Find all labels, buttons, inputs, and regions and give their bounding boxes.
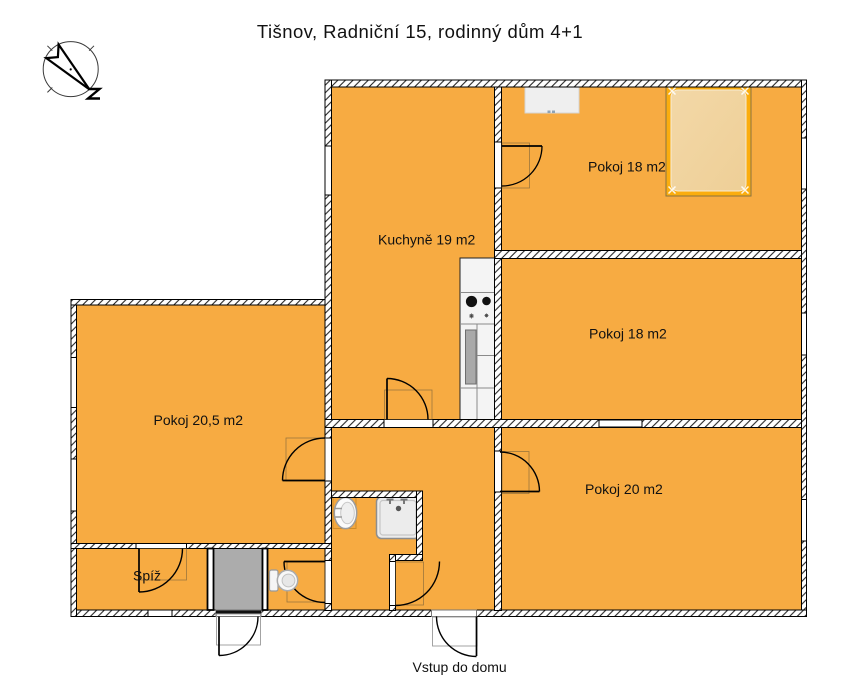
svg-text:Pokoj 20 m2: Pokoj 20 m2: [585, 481, 663, 497]
svg-text:Vstup do domu: Vstup do domu: [413, 659, 507, 675]
svg-text:Pokoj 18 m2: Pokoj 18 m2: [588, 159, 666, 175]
svg-text:Tišnov, Radniční 15, rodinný d: Tišnov, Radniční 15, rodinný dům 4+1: [257, 21, 583, 42]
svg-text:Pokoj 20,5 m2: Pokoj 20,5 m2: [154, 412, 244, 428]
svg-text:Kuchyně 19 m2: Kuchyně 19 m2: [378, 232, 475, 248]
svg-text:Pokoj 18 m2: Pokoj 18 m2: [589, 326, 667, 342]
svg-text:Spíž: Spíž: [133, 568, 161, 584]
